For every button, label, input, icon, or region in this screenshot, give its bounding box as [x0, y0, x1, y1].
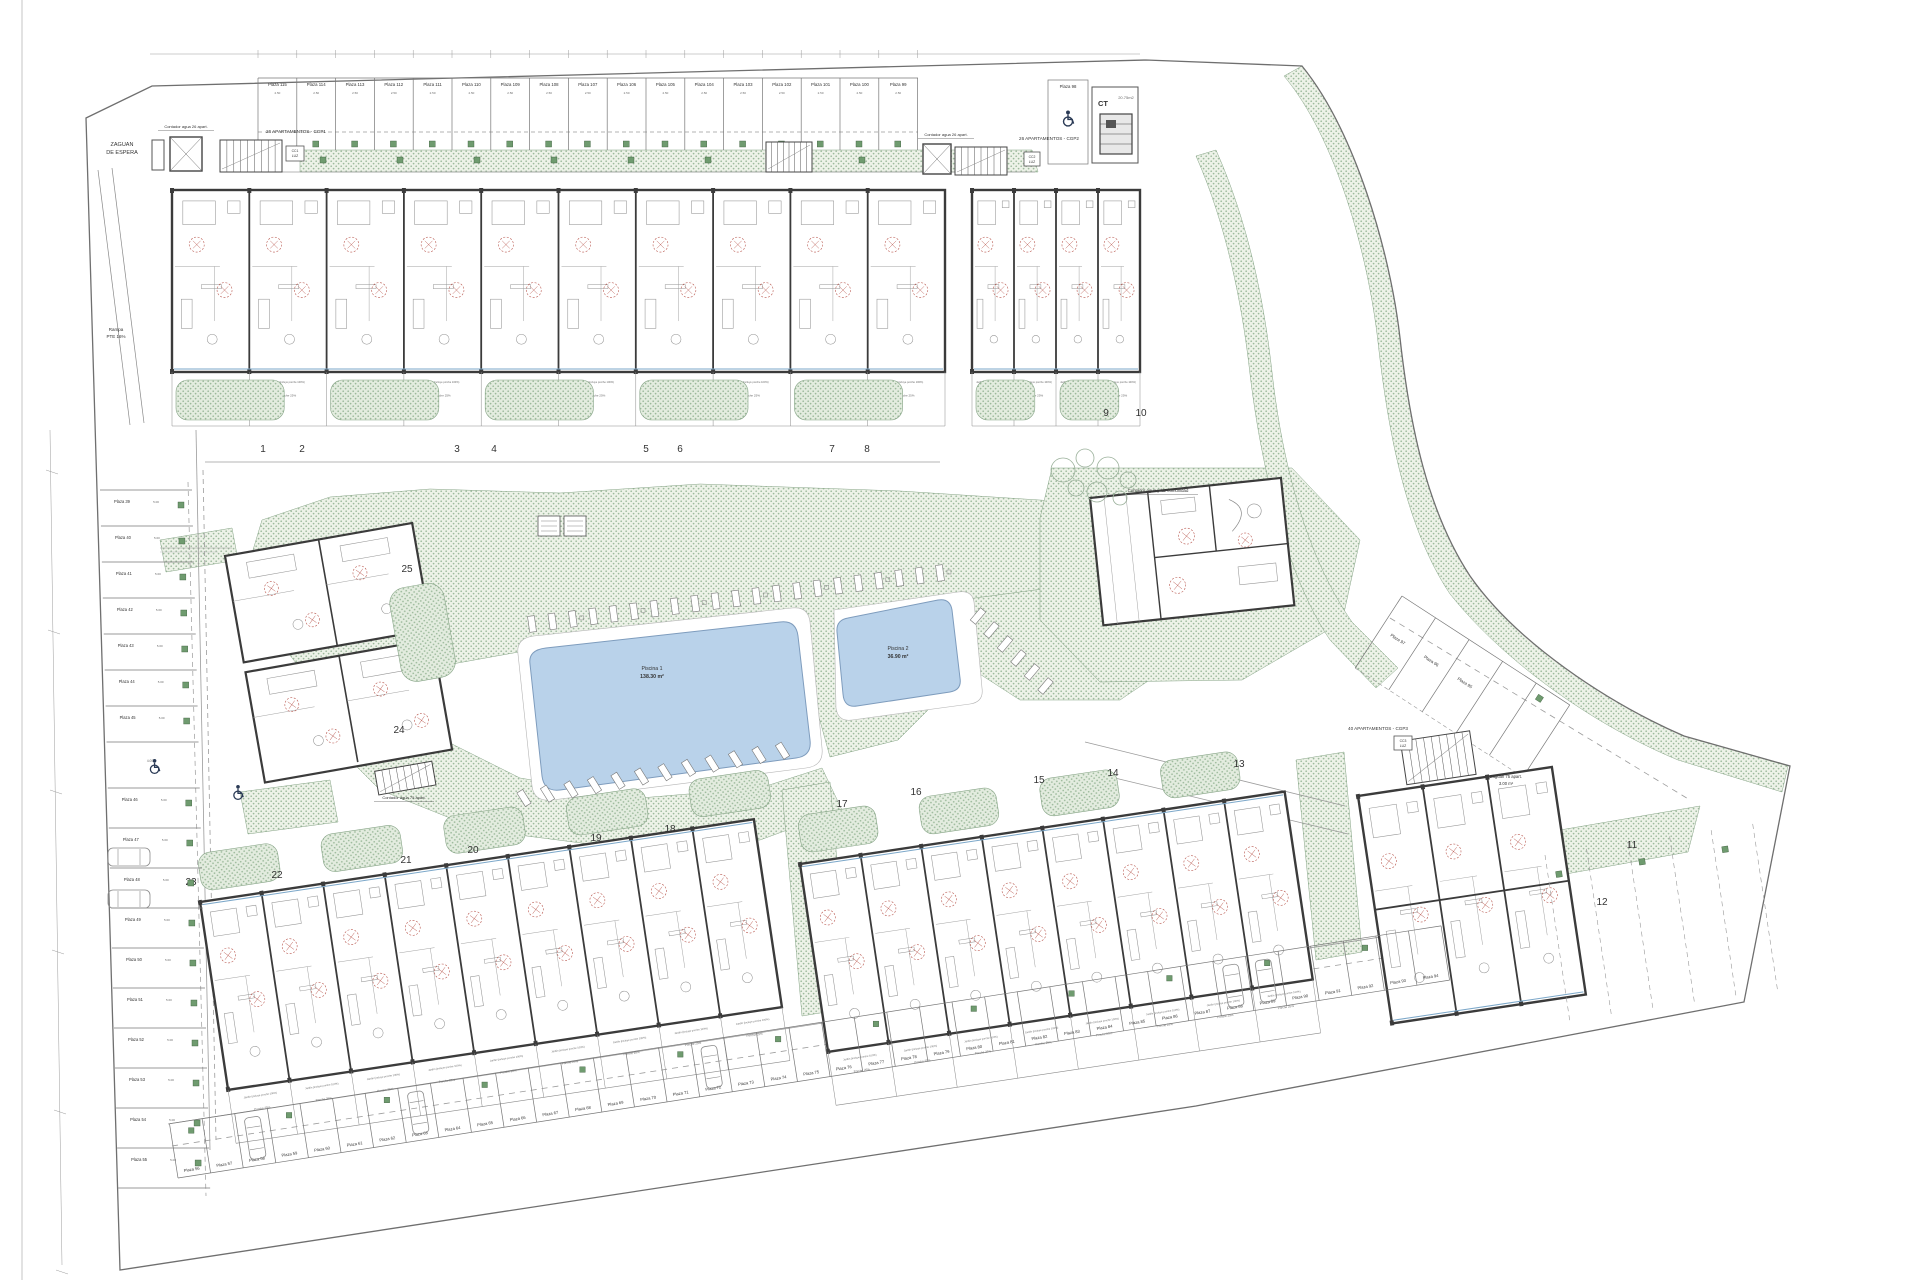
stall-dim: 5.00 [157, 644, 163, 648]
plot-number: 18 [664, 824, 676, 835]
porche-text: Porche 25% [315, 1096, 332, 1102]
car [108, 848, 150, 866]
parking-space-label: Plaza 41 [116, 571, 133, 576]
parking-space-label: Plaza 95 [1457, 676, 1474, 690]
stall-dim: 5.00 [156, 608, 162, 612]
parking-space-label: Plaza 81 [998, 1039, 1015, 1047]
ramp-label: PTE 16% [106, 334, 125, 339]
plan-page: Plaza 1152.50Plaza 1142.50Plaza 1132.50P… [0, 0, 1920, 1280]
parking-space-label: Plaza 101 [811, 82, 831, 87]
plot-number: 16 [910, 787, 922, 798]
stall-dim: 2.50 [779, 91, 785, 95]
jardin-text: Jardín (incluye porche 100%) [366, 1072, 400, 1081]
jardin-text: Jardín (incluye porche 100%) [428, 1063, 462, 1072]
parking-space-label: Plaza 57 [216, 1160, 233, 1168]
parking-space-label: Plaza 53 [129, 1077, 146, 1082]
site-plan: Plaza 1152.50Plaza 1142.50Plaza 1132.50P… [0, 0, 1920, 1280]
stall-dim: 2.50 [507, 91, 513, 95]
plot-number: 9 [1103, 408, 1109, 419]
parking-space-label: Plaza 114 [307, 82, 326, 87]
parking-space-label: Plaza 51 [127, 997, 144, 1002]
parking-space-label: Plaza 76 [835, 1064, 852, 1072]
parking-space-label: Plaza 98 [1060, 84, 1077, 89]
cc-box-label: CC2 [1029, 155, 1036, 159]
hedge [331, 380, 439, 420]
plot-number: 19 [590, 833, 602, 844]
cc-box-label: LUZ [292, 154, 298, 158]
plot-number: 6 [677, 444, 683, 455]
parking-space-label: Plaza 42 [117, 607, 134, 612]
plot-number: 13 [1233, 759, 1245, 770]
zaguan-75-label: 3.00 m² [1499, 781, 1514, 786]
community-building [1090, 478, 1294, 625]
hedge [1159, 750, 1242, 799]
stall-dim: 2.50 [662, 91, 668, 95]
stall-dim: 5.00 [155, 572, 161, 576]
parking-space-label: Plaza 48 [124, 877, 141, 882]
contador-label: Contador agua 75 apart. [382, 795, 425, 800]
block-label: 26 APARTAMENTOS - CGP2 [1019, 136, 1079, 141]
jardin-text: Jardín (incluye porche 100%) [243, 1091, 277, 1100]
stall-dim: 2.50 [313, 91, 319, 95]
parking-space-label: Plaza 107 [578, 82, 598, 87]
parking-space-label: Plaza 113 [346, 82, 365, 87]
stall-dim: 5.00 [158, 680, 164, 684]
hedge [794, 380, 902, 420]
ct-area: 20.75m2 [1118, 95, 1134, 100]
hedge [176, 380, 284, 420]
parking-space-label: Plaza 100 [850, 82, 870, 87]
parking-space-label: Plaza 69 [607, 1099, 624, 1107]
stall-dim: 2.50 [585, 91, 591, 95]
jardin-text: Jardín (incluye porche 100%) [1085, 1016, 1119, 1025]
contador-label: Contador agua y luz comunidad [1128, 488, 1189, 493]
hedge [640, 380, 748, 420]
parking-space-label: Plaza 61 [346, 1140, 363, 1148]
parking-space-98: Plaza 98 [1048, 80, 1088, 164]
parking-space-label: Plaza 106 [617, 82, 637, 87]
parking-space-label: Plaza 103 [733, 82, 753, 87]
pool-name: Piscina 2 [887, 646, 908, 652]
parking-space-label: Plaza 105 [656, 82, 676, 87]
plot-number: 3 [454, 444, 460, 455]
stall-dim: 5.00 [168, 1078, 174, 1082]
parking-space-label: Plaza 110 [462, 82, 481, 87]
stall-dim: 2.50 [391, 91, 397, 95]
parking-space-label: Plaza 73 [738, 1079, 755, 1087]
apartment-block-bottom-right [1356, 765, 1586, 1026]
caseta-box [564, 516, 586, 536]
road-line [203, 470, 216, 1140]
parking-space-label: Plaza 39 [114, 499, 131, 504]
stall-dim: 2.50 [274, 91, 280, 95]
jardin-text: Jardín (incluye porche 100%) [736, 1017, 770, 1026]
ramp-label: Rampa [109, 327, 124, 332]
parking-space-label: Plaza 45 [120, 715, 137, 720]
stall-dim: 5.00 [164, 918, 170, 922]
jardin-text: Jardín (incluye porche 100%) [674, 1026, 708, 1035]
stall-dim: 5.00 [153, 500, 159, 504]
parking-space-label: Plaza 40 [115, 535, 132, 540]
cc-box-label: LUZ [1400, 744, 1406, 748]
plot-number: 1 [260, 444, 266, 455]
parking-space-label: Plaza 66 [509, 1115, 526, 1123]
cc-box-label: LUZ [1029, 160, 1035, 164]
parking-space-label: Plaza 44 [119, 679, 136, 684]
plot-number: 22 [271, 870, 283, 881]
parking-space-label: Plaza 77 [868, 1059, 885, 1067]
plot-number: 5 [643, 444, 649, 455]
apartment-block-bottom-left: Porche 25%Jardín (incluye porche 100%)Po… [198, 817, 790, 1143]
cc-box-label: CC1 [292, 149, 299, 153]
pool-area-label: 36.90 m² [888, 654, 909, 660]
parking-space-label: Plaza 71 [672, 1089, 689, 1097]
stall-dim: 2.50 [895, 91, 901, 95]
stall-dim: 5.00 [163, 878, 169, 882]
hedge [197, 842, 282, 891]
plot-number: 8 [864, 444, 870, 455]
parking-space-label: Plaza 46 [122, 797, 139, 802]
parking-space-label: Plaza 99 [890, 82, 907, 87]
stall-dim: 2.50 [624, 91, 630, 95]
block-label: 40 APARTAMENTOS - CGP3 [1348, 726, 1408, 731]
contador-label: Contador agua 26 apart. [164, 124, 207, 129]
ct-label: CT [1098, 99, 1108, 108]
stairs [955, 147, 1007, 175]
parking-space-label: Plaza 108 [539, 82, 559, 87]
stall-dim: 5.00 [165, 958, 171, 962]
stall-dim: 5.00 [154, 536, 160, 540]
parking-space-label: Plaza 102 [772, 82, 792, 87]
parking-space-label: Plaza 54 [130, 1117, 147, 1122]
parking-space-label: Plaza 85 [1129, 1018, 1146, 1026]
elevator [923, 144, 951, 174]
jardin-text: Jardín (incluye porche 100%) [613, 1035, 647, 1044]
parking-space-label: Plaza 49 [125, 917, 142, 922]
zaguan-75-label: Zaguán 75 apart. [1490, 774, 1522, 779]
parking-space-label: Plaza 87 [1194, 1008, 1211, 1016]
hedge [1060, 380, 1119, 420]
stall-dim: 2.50 [856, 91, 862, 95]
parking-space-label: Plaza 70 [640, 1094, 657, 1102]
parking-space-label: Plaza 83 [1064, 1028, 1081, 1036]
parking-space-label: Plaza 47 [123, 837, 140, 842]
pool-name: Piscina 1 [641, 666, 662, 672]
plot-number: 25 [401, 564, 413, 575]
stall-dim: 2.50 [468, 91, 474, 95]
hedge [976, 380, 1035, 420]
jardin-text: Jardín (incluye porche 100%) [551, 1045, 585, 1054]
tree [1076, 449, 1094, 467]
parking-space-label: Plaza 43 [118, 643, 135, 648]
zaguan-espera-label: ZAGUAN [111, 142, 134, 148]
parking-space-label: Plaza 50 [126, 957, 143, 962]
parking-space-label: Plaza 111 [423, 82, 442, 87]
parking-space-label: Plaza 68 [575, 1105, 592, 1113]
stall-dim: 2.50 [701, 91, 707, 95]
zaguan-espera-label: DE ESPERA [106, 150, 138, 156]
ramp: RampaPTE 16% [98, 168, 144, 425]
car [407, 1091, 429, 1135]
stall-dim: 5.00 [159, 716, 165, 720]
hedge [485, 380, 593, 420]
parking-space-label: Plaza 97 [1389, 633, 1406, 647]
plot-number: 4 [491, 444, 497, 455]
plot-number: 15 [1033, 775, 1045, 786]
stall-dim: 2.50 [818, 91, 824, 95]
parking-space-label: Plaza 92 [1357, 983, 1374, 991]
plot-number: 14 [1107, 768, 1119, 779]
parking-space-label: Plaza 109 [501, 82, 521, 87]
cc-box-label: CC3 [1400, 739, 1407, 743]
porche-text: Porche 25% [975, 1049, 992, 1055]
parking-space-label: Plaza 74 [770, 1074, 787, 1082]
apartment-block-cgp1: Porche 25%Jardín (incluye porche 100%)Po… [170, 188, 945, 426]
parking-space-label: Plaza 91 [1325, 988, 1342, 996]
jardin-text: Jardín (incluye porche 100%) [489, 1054, 523, 1063]
plot-number: 24 [393, 725, 405, 736]
jardin-text: Jardín (incluye porche 100%) [964, 1034, 998, 1043]
parking-space-label: Plaza 64 [444, 1125, 461, 1133]
porche-text: Porche 25% [685, 1041, 702, 1047]
gap-dim: 4.00 [147, 759, 153, 763]
stall-dim: 2.50 [546, 91, 552, 95]
parking-space-label: Plaza 65 [477, 1120, 494, 1128]
plot-number: 17 [836, 799, 848, 810]
pool-area-label: 138.30 m² [640, 674, 664, 680]
stall-dim: 5.00 [169, 1118, 175, 1122]
jardin-text: Jardín (incluye porche 100%) [305, 1081, 339, 1090]
contador-label: Contador agua 26 apart. [924, 132, 967, 137]
parking-space-label: Plaza 56 [183, 1165, 200, 1173]
stall-dim: 5.00 [161, 798, 167, 802]
plot-number: 2 [299, 444, 305, 455]
car [701, 1045, 723, 1089]
hedge [319, 824, 404, 873]
stairs [220, 140, 282, 172]
stairs [766, 142, 812, 172]
ct-transformer: CT20.75m2 [1092, 87, 1138, 163]
hedge [918, 786, 1001, 835]
parking-space-label: Plaza 67 [542, 1110, 559, 1118]
parking-space-label: Plaza 84 [1096, 1023, 1113, 1031]
parking-space-label: Plaza 96 [1423, 654, 1440, 668]
parking-space-label: Plaza 52 [128, 1037, 145, 1042]
left-parking-column: Plaza 395.00Plaza 405.00Plaza 415.00Plaz… [100, 482, 210, 1196]
stall-dim: 5.00 [166, 998, 172, 1002]
parking-space-label: Plaza 104 [695, 82, 715, 87]
car [244, 1116, 266, 1160]
parking-space-label: Plaza 79 [933, 1049, 950, 1057]
plot-number: 10 [1135, 408, 1147, 419]
stall-dim: 2.50 [430, 91, 436, 95]
plot-number: 12 [1596, 897, 1608, 908]
parking-space-label: Plaza 59 [281, 1150, 298, 1158]
car [108, 890, 150, 908]
parking-space-label: Plaza 62 [379, 1135, 396, 1143]
parking-space-label: Plaza 75 [803, 1069, 820, 1077]
parking-space-label: Plaza 60 [314, 1145, 331, 1153]
elevator [170, 137, 202, 171]
jardin-text: Jardín (incluye porche 100%) [1025, 1025, 1059, 1034]
plot-number: 20 [467, 845, 479, 856]
stall-dim: 2.50 [740, 91, 746, 95]
caseta-box [538, 516, 560, 536]
stall-dim: 2.50 [352, 91, 358, 95]
block-label: 26 APARTAMENTOS - CGP1 [266, 129, 326, 134]
parking-space-label: Plaza 86 [1161, 1013, 1178, 1021]
stall-dim: 5.00 [167, 1038, 173, 1042]
apartment-block-cgp2: Porche 25%Jardín (incluye porche 100%)Po… [970, 188, 1140, 426]
landscape-green [240, 780, 338, 834]
plot-number: 7 [829, 444, 835, 455]
parking-space-label: Plaza 112 [384, 82, 403, 87]
plot-number: 21 [400, 855, 412, 866]
parking-space-label: Plaza 115 [268, 82, 287, 87]
stall-dim: 5.00 [162, 838, 168, 842]
parking-space-label: Plaza 55 [131, 1157, 148, 1162]
